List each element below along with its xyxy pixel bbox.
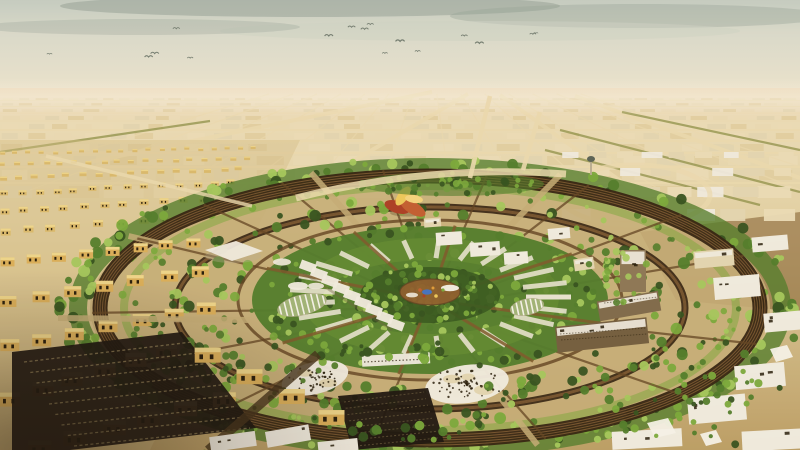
scene-rendering xyxy=(0,0,800,450)
aerial-city-rendering xyxy=(0,0,800,450)
warm-haze xyxy=(0,0,800,450)
